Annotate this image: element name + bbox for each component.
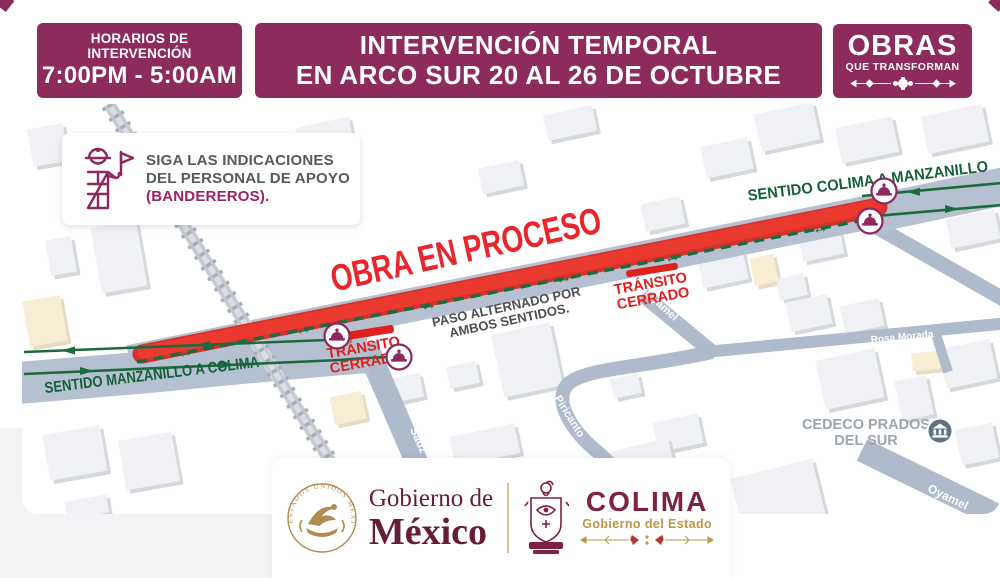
mexico-label: México [369,513,493,551]
colima-name-label: COLIMA [586,488,708,516]
both-directions-arrow-icon: ↔ [293,318,313,340]
civic-building-icon [927,418,954,445]
gobierno-de-label: Gobierno de [369,486,493,511]
poi-label: DEL SUR [834,433,898,449]
poi-label: CEDECO PRADOS [802,417,930,433]
building [955,422,1000,470]
both-directions-arrow-icon: ↔ [175,341,195,363]
colima-flourish-icon [577,532,717,548]
schedule-title: HORARIOS DE INTERVENCIÓN [37,31,242,61]
both-directions-arrow-icon: ↔ [418,294,438,316]
brand-flourish-icon [847,77,959,90]
gobierno-de-mexico-logo: ESTADOS UNIDOS MEXICANOS Gobierno de Méx… [285,481,493,555]
main-title-banner: INTERVENCIÓN TEMPORAL EN ARCO SUR 20 AL … [255,23,822,98]
notice-line2: DEL PERSONAL DE APOYO [146,170,350,188]
colima-subtitle-label: Gobierno del Estado [582,518,712,531]
page-title-line1: INTERVENCIÓN TEMPORAL [360,31,718,60]
logo-divider [507,483,509,553]
page-title-line2: EN ARCO SUR 20 AL 26 DE OCTUBRE [296,61,781,90]
notice-line1: SIGA LAS INDICACIONES [146,152,350,170]
brand-banner: OBRAS QUE TRANSFORMAN [833,24,972,98]
building [42,425,111,485]
colima-logo: COLIMA Gobierno del Estado [523,480,717,556]
building [118,431,184,494]
brand-name: OBRAS [848,32,958,61]
flagger-notice-card: SIGA LAS INDICACIONES DEL PERSONAL DE AP… [62,133,360,225]
mexico-eagle-seal-icon: ESTADOS UNIDOS MEXICANOS [285,481,359,555]
schedule-banner: HORARIOS DE INTERVENCIÓN 7:00PM - 5:00AM [37,23,242,98]
building [22,295,71,351]
government-logos-card: ESTADOS UNIDOS MEXICANOS Gobierno de Méx… [272,458,730,578]
schedule-hours: 7:00PM - 5:00AM [42,63,237,90]
colima-crest-icon [523,480,569,556]
flagger-worker-icon [76,144,134,214]
brand-tagline: QUE TRANSFORMAN [846,62,960,74]
notice-flaggers: (BANDEREROS). [146,188,350,206]
both-directions-arrow-icon: ↔ [810,217,830,239]
